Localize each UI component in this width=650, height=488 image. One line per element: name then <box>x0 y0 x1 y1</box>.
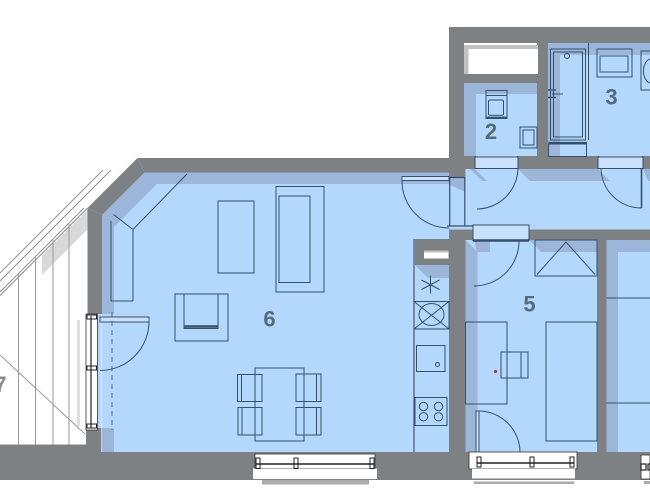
svg-text:3: 3 <box>605 85 617 110</box>
svg-text:7: 7 <box>0 372 7 397</box>
svg-text:6: 6 <box>263 307 275 332</box>
svg-text:2: 2 <box>485 119 497 144</box>
svg-text:5: 5 <box>523 292 535 317</box>
